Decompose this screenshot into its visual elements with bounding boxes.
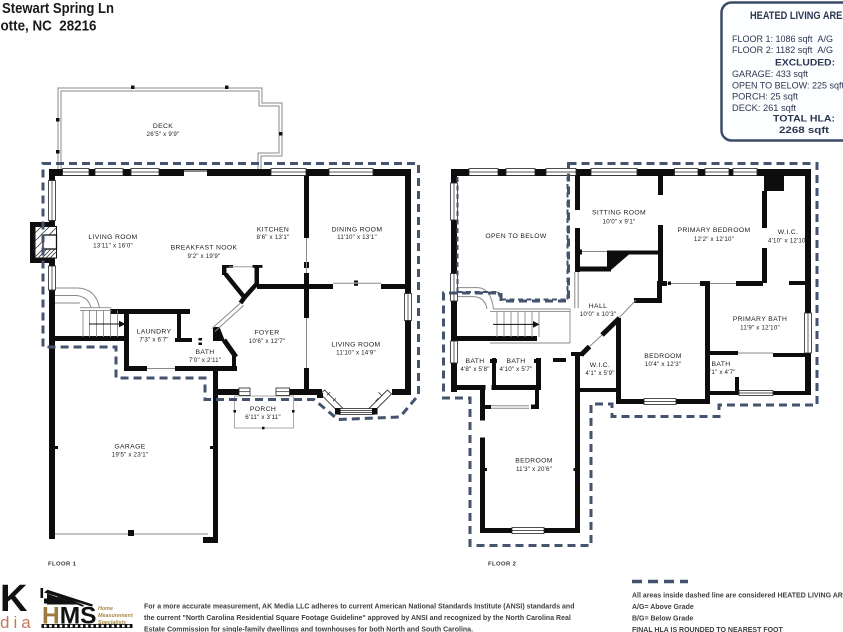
svg-text:BATH: BATH xyxy=(195,349,214,356)
svg-text:10'0" x 10'3": 10'0" x 10'3" xyxy=(580,311,617,318)
svg-text:TOTAL HLA:: TOTAL HLA: xyxy=(773,114,835,125)
svg-text:BATH: BATH xyxy=(711,361,730,368)
svg-text:26'5" x 9'9": 26'5" x 9'9" xyxy=(147,131,180,138)
svg-text:PRIMARY BEDROOM: PRIMARY BEDROOM xyxy=(678,227,751,234)
svg-text:PORCH: 25 sqft: PORCH: 25 sqft xyxy=(732,92,798,103)
svg-text:A/G= Above Grade: A/G= Above Grade xyxy=(632,604,694,611)
svg-text:FLOOR 2: FLOOR 2 xyxy=(488,562,517,568)
svg-text:All areas inside dashed line a: All areas inside dashed line are conside… xyxy=(632,593,843,600)
svg-text:HEATED LIVING AREA: HEATED LIVING AREA xyxy=(750,10,843,22)
svg-text:10'6" x 12'7": 10'6" x 12'7" xyxy=(249,338,286,345)
svg-text:SITTING ROOM: SITTING ROOM xyxy=(592,210,646,217)
svg-text:otte, NC 28216: otte, NC 28216 xyxy=(1,18,97,35)
svg-text:GARAGE: 433 sqft: GARAGE: 433 sqft xyxy=(732,69,808,80)
svg-text:Stewart Spring Ln: Stewart Spring Ln xyxy=(2,0,114,17)
svg-text:DECK: DECK xyxy=(153,123,173,130)
svg-text:11'10" x 13'1": 11'10" x 13'1" xyxy=(337,234,377,241)
svg-text:PRIMARY BATH: PRIMARY BATH xyxy=(733,316,787,323)
svg-text:Home: Home xyxy=(98,606,113,612)
svg-text:BEDROOM: BEDROOM xyxy=(644,353,682,360)
svg-text:13'11" x 16'0": 13'11" x 16'0" xyxy=(93,243,133,250)
svg-text:6'11" x 3'11": 6'11" x 3'11" xyxy=(245,414,281,421)
svg-text:dia: dia xyxy=(0,613,35,632)
svg-text:KITCHEN: KITCHEN xyxy=(257,227,289,234)
svg-text:FLOOR 1: 1086 sqft A/G: FLOOR 1: 1086 sqft A/G xyxy=(732,34,833,45)
svg-text:LAUNDRY: LAUNDRY xyxy=(137,329,172,336)
svg-text:DINING ROOM: DINING ROOM xyxy=(332,227,383,234)
svg-text:BATH: BATH xyxy=(506,358,525,365)
svg-text:12'2" x 12'10": 12'2" x 12'10" xyxy=(694,236,734,243)
svg-text:W.I.C.: W.I.C. xyxy=(590,362,611,369)
svg-text:11'3" x 20'6": 11'3" x 20'6" xyxy=(516,466,552,473)
svg-text:BATH: BATH xyxy=(465,358,484,365)
svg-text:7'1" x 4'7": 7'1" x 4'7" xyxy=(706,369,735,376)
svg-text:Estate Commission for single-f: Estate Commission for single-family dwel… xyxy=(144,627,473,632)
svg-text:11'10" x 14'9": 11'10" x 14'9" xyxy=(336,350,376,357)
svg-text:W.I.C.: W.I.C. xyxy=(778,229,799,236)
svg-text:OPEN TO BELOW: OPEN TO BELOW xyxy=(485,233,547,240)
svg-text:GARAGE: GARAGE xyxy=(114,444,145,451)
svg-text:LIVING ROOM: LIVING ROOM xyxy=(88,234,137,241)
svg-text:Measurement: Measurement xyxy=(98,613,133,619)
svg-text:8'6" x 13'1": 8'6" x 13'1" xyxy=(257,234,290,241)
svg-text:7'0" x 2'11": 7'0" x 2'11" xyxy=(189,357,221,364)
svg-text:FLOOR 1: FLOOR 1 xyxy=(48,562,77,568)
svg-text:For a more accurate measuremen: For a more accurate measurement, AK Medi… xyxy=(144,604,574,611)
svg-text:19'5" x 23'1": 19'5" x 23'1" xyxy=(112,452,149,459)
svg-text:B/G= Below Grade: B/G= Below Grade xyxy=(632,616,693,623)
svg-text:4'8" x 5'8": 4'8" x 5'8" xyxy=(460,366,489,373)
svg-text:9'2" x 19'9": 9'2" x 19'9" xyxy=(188,253,221,260)
svg-text:FLOOR 2: 1182 sqft A/G: FLOOR 2: 1182 sqft A/G xyxy=(732,45,833,56)
svg-text:FINAL HLA IS ROUNDED TO NEARES: FINAL HLA IS ROUNDED TO NEAREST FOOT xyxy=(632,627,783,632)
svg-text:7'3" x 6'7": 7'3" x 6'7" xyxy=(139,337,168,344)
svg-text:HALL: HALL xyxy=(589,303,607,310)
svg-text:the current "North Carolina Re: the current "North Carolina Residential … xyxy=(144,615,571,622)
svg-text:LIVING ROOM: LIVING ROOM xyxy=(331,342,380,349)
svg-text:OPEN TO BELOW: 225 sqft: OPEN TO BELOW: 225 sqft xyxy=(732,81,843,92)
svg-text:2268 sqft: 2268 sqft xyxy=(779,125,830,136)
svg-text:DECK: 261 sqft: DECK: 261 sqft xyxy=(732,103,796,114)
svg-text:PORCH: PORCH xyxy=(250,406,276,413)
svg-text:4'10" x 12'10": 4'10" x 12'10" xyxy=(768,238,808,245)
svg-text:11'9" x 12'10": 11'9" x 12'10" xyxy=(740,325,780,332)
svg-text:EXCLUDED:: EXCLUDED: xyxy=(775,58,835,69)
svg-text:10'0" x 9'1": 10'0" x 9'1" xyxy=(603,219,636,226)
svg-text:4'1" x 5'9": 4'1" x 5'9" xyxy=(585,370,614,377)
svg-text:BREAKFAST NOOK: BREAKFAST NOOK xyxy=(171,245,238,252)
svg-text:BEDROOM: BEDROOM xyxy=(515,458,553,465)
svg-text:4'10" x 5'7": 4'10" x 5'7" xyxy=(500,366,533,373)
svg-text:FOYER: FOYER xyxy=(254,330,279,337)
svg-text:10'4" x 12'3": 10'4" x 12'3" xyxy=(645,361,682,368)
